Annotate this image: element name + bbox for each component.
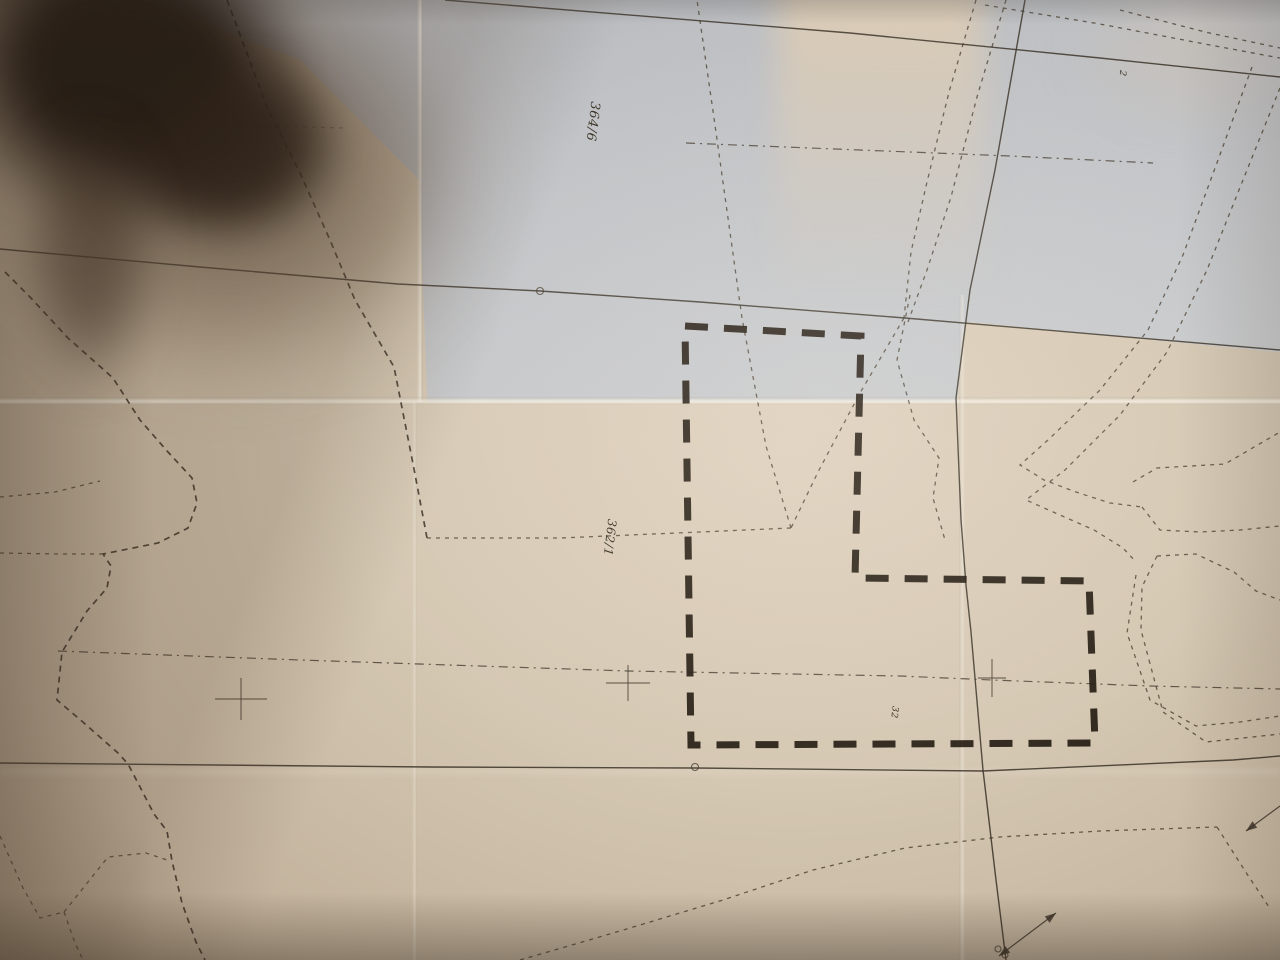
paper-grey-fold-region — [0, 0, 1280, 960]
road-edge-west — [904, 0, 976, 318]
survey-axis-northeast — [686, 143, 1153, 163]
parcel-label-364-6: 364/6 — [583, 101, 603, 142]
southwest-branch-c — [64, 912, 83, 960]
boundary-point-b — [692, 764, 699, 771]
hand-shadow-arm — [99, 31, 372, 274]
paper-background — [0, 0, 1280, 960]
west-meander — [5, 272, 205, 960]
junction-spur — [791, 318, 904, 528]
boundary-line-top — [445, 0, 1280, 77]
northeast-boundary-a — [985, 5, 1280, 58]
benchmark-point-b — [1002, 952, 1008, 958]
boundary-point-a — [537, 288, 544, 295]
east-strip-top — [1133, 432, 1280, 482]
east-channel-south — [1127, 575, 1280, 726]
east-pocket-top — [1157, 554, 1280, 600]
fold-crease-vertical-top — [417, 0, 423, 402]
east-edge-arrow — [1246, 806, 1280, 831]
east-channel-inner — [1026, 88, 1280, 562]
map-linework-svg: 364/6362/1232 — [0, 0, 1280, 960]
east-strip-bottom — [1142, 507, 1280, 532]
map-photo: 364/6362/1232 — [0, 0, 1280, 960]
lighting-warm-band — [778, 0, 983, 340]
east-channel-south-b — [1149, 660, 1280, 742]
east-channel-outer — [1020, 67, 1252, 507]
survey-cross-east — [978, 659, 1006, 697]
northwest-diagonal — [227, 0, 427, 538]
lighting-vignette-overlay — [0, 0, 1280, 960]
hand-shadow-core — [0, 0, 363, 283]
southeast-diagonal — [520, 827, 1217, 960]
hand-shadow-column — [22, 115, 157, 395]
survey-axis-main — [58, 651, 1280, 689]
east-pocket-west — [1141, 556, 1157, 660]
hand-shadow-penumbra — [0, 0, 550, 450]
west-spur-lower — [0, 553, 102, 554]
small-label-32: 32 — [888, 705, 899, 719]
shadowed-faint-line — [78, 120, 345, 128]
parcel-362-south-edge — [427, 528, 791, 538]
fold-crease-horizontal — [0, 397, 1280, 405]
boundary-line-bottom — [0, 756, 1280, 771]
northeast-boundary-b — [1120, 10, 1280, 48]
small-label-2: 2 — [1117, 69, 1128, 77]
boundary-line-vertical — [956, 0, 1025, 960]
southwest-branch-b — [64, 853, 170, 912]
parcel-362-east-edge — [697, 0, 791, 528]
benchmark-arrow — [999, 913, 1056, 956]
fold-crease-vertical-right — [959, 295, 965, 960]
parcel-label-362-1: 362/1 — [601, 518, 619, 557]
survey-cross-west — [215, 678, 267, 720]
southeast-branch — [1217, 827, 1269, 907]
survey-cross-center — [606, 665, 650, 701]
fold-crease-horizontal-lower — [0, 769, 1280, 778]
benchmark-point-a — [995, 946, 1001, 952]
boundary-line-middle — [0, 249, 1280, 350]
polygon-east-wavy — [897, 295, 945, 540]
road-edge-east — [908, 0, 1006, 322]
highlighted-parcel-outline — [685, 326, 1095, 745]
lighting-corner-warm — [1060, 0, 1280, 140]
west-spur-upper — [0, 481, 100, 497]
fold-crease-vertical-bottom — [412, 402, 417, 960]
southwest-branch-a — [0, 836, 64, 918]
